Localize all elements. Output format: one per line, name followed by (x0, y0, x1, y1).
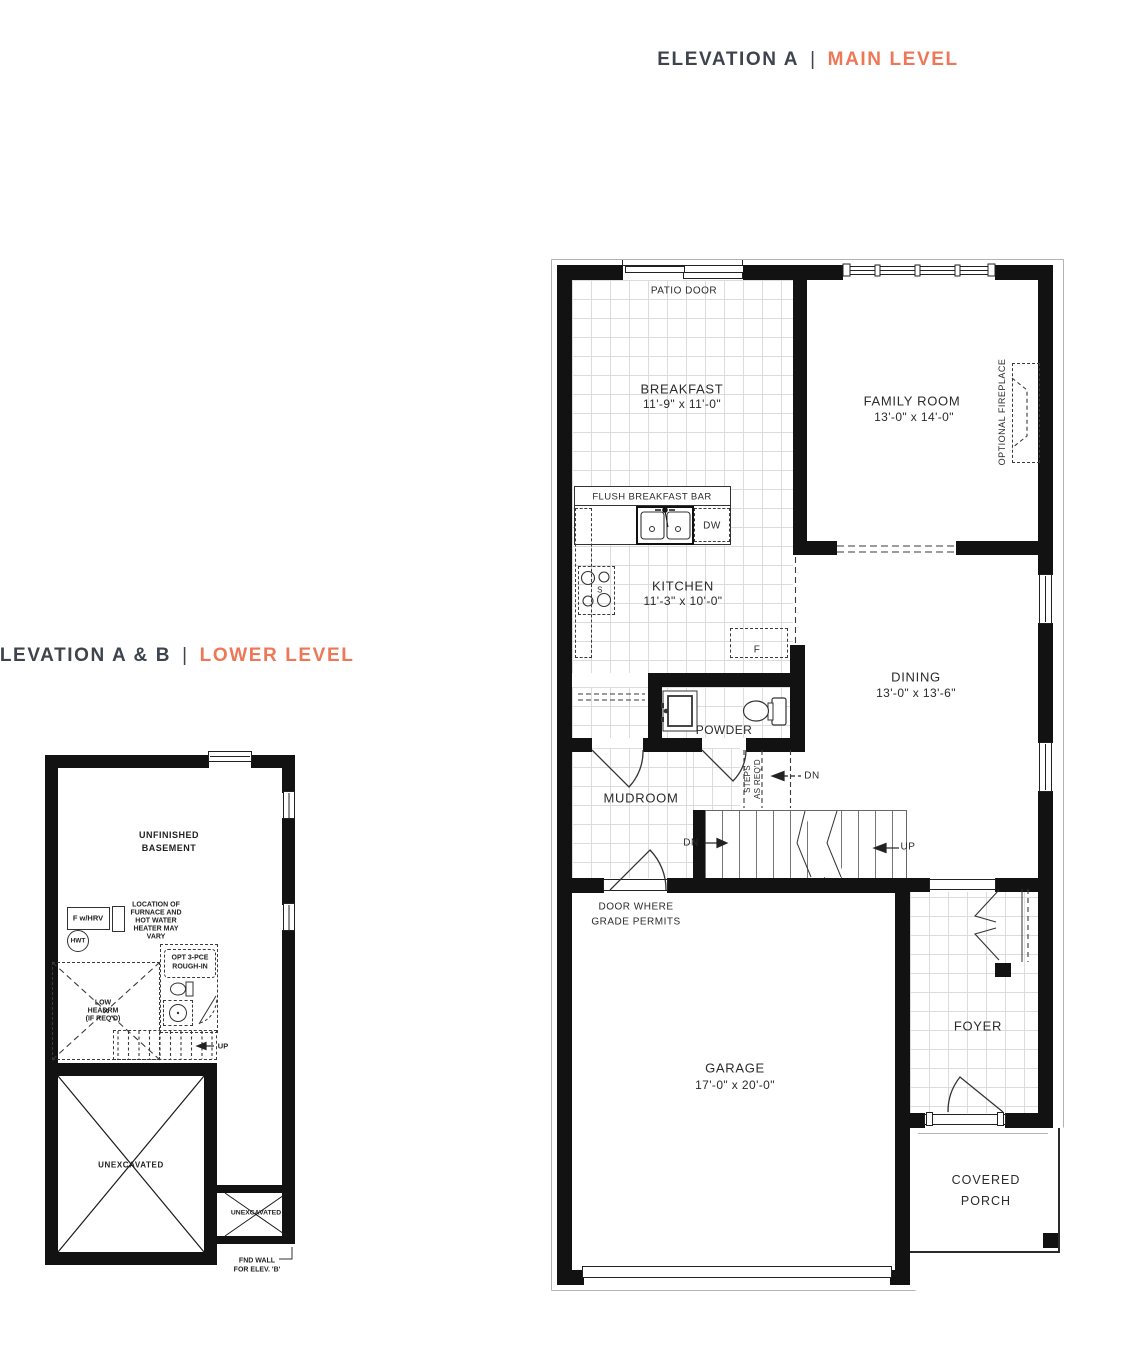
dining-window-1 (1039, 574, 1052, 624)
unexc-wall-bottom (45, 1252, 217, 1265)
wall-breakfast-family (793, 280, 807, 555)
mudroom-floor-ext (693, 748, 740, 810)
wall-foyer-front-b (1005, 1113, 1053, 1128)
wall-powder-bottom-c (746, 738, 805, 752)
kitchen-dims: 11'-3" x 10'-0" (644, 594, 723, 608)
wall-powder-bottom-b (643, 738, 702, 752)
grade-door-note-2: GRADE PERMITS (591, 917, 680, 928)
wall-garage-right (895, 878, 910, 1270)
powder-label: POWDER (696, 723, 752, 737)
dn-arrow-dining-head (772, 772, 784, 781)
unfinished-basement-label-2: BASEMENT (142, 843, 197, 853)
bsmt-wall-right (282, 755, 295, 1244)
unexcavated-small-label: UNEXCAVATED (231, 1210, 281, 1217)
unfinished-basement-label-1: UNFINISHED (139, 830, 199, 840)
covered-porch-outline (910, 1128, 1060, 1253)
end-wall-leader (279, 1247, 292, 1259)
wall-main-right (1038, 265, 1053, 1128)
bsmt-wall-top (45, 755, 295, 768)
covered-porch-label-1: COVERED (952, 1173, 1021, 1187)
low-headrm-label-3: (IF REQ'D) (86, 1016, 121, 1023)
front-door-threshold (924, 1114, 1006, 1125)
bsmt-stairs-dashed (113, 1030, 217, 1060)
low-headrm-label-2: HEADRM (88, 1008, 119, 1015)
foyer-floor (910, 878, 1038, 1113)
floorplan-canvas: ELEVATION A|MAIN LEVEL ELEVATION A & B|L… (0, 0, 1129, 1365)
porch-post (1043, 1233, 1058, 1248)
furnace-hrv-label: F w/HRV (73, 914, 103, 923)
patio-door-panel-1 (625, 266, 685, 273)
steps-line-1: STEPS (743, 759, 753, 799)
up-label-bsmt: UP (218, 1042, 228, 1051)
lower-level-header: ELEVATION A & B|LOWER LEVEL (0, 645, 354, 667)
hwt-label: HWT (71, 938, 86, 945)
wall-powder-bottom-a (572, 738, 592, 752)
furnace-note-2: FURNACE AND (130, 910, 181, 917)
dining-label: DINING (891, 670, 941, 685)
furnace-note-5: VARY (147, 934, 166, 941)
garage-label: GARAGE (705, 1061, 765, 1076)
furnace-duct-box (112, 906, 125, 932)
bsmt-top-window (208, 751, 252, 762)
main-header-level: MAIN LEVEL (828, 49, 959, 70)
lower-header-level: LOWER LEVEL (200, 645, 355, 666)
end-wall-note-1: FND WALL (239, 1258, 275, 1265)
wall-dining-left (790, 645, 805, 748)
dn-label-dining: DN (804, 771, 819, 782)
dn-label-stairs: DN (683, 838, 698, 849)
front-door-sidelite-left (926, 1112, 933, 1126)
steps-line-2: AS REQ'D (753, 759, 763, 799)
wall-family-bottom-right (956, 541, 1038, 555)
optional-fireplace-label: OPTIONAL FIREPLACE (997, 359, 1007, 466)
stove-label: S (597, 586, 603, 595)
wall-powder-top (648, 673, 805, 687)
family-room-label: FAMILY ROOM (864, 394, 961, 409)
dining-window-2 (1039, 742, 1052, 792)
lower-header-elevation: ELEVATION A & B (0, 645, 171, 666)
fridge-label: F (754, 645, 761, 656)
bsmt-right-window-2 (283, 903, 295, 931)
mudroom-floor (572, 748, 693, 878)
patio-door-label: PATIO DOOR (651, 286, 717, 297)
wall-powder-left (648, 687, 662, 738)
shower-rough-box (163, 1000, 193, 1026)
grade-door-note-1: DOOR WHERE (599, 902, 674, 913)
furnace-note-3: HOT WATER (135, 918, 176, 925)
wall-dining-bottom-b (995, 878, 1038, 892)
steps-as-reqd-label: STEPS AS REQ'D (743, 759, 763, 799)
main-header-elevation: ELEVATION A (657, 49, 799, 70)
wall-main-left (557, 265, 572, 1285)
rough-in-label-1: OPT 3-PCE (172, 955, 209, 962)
flush-breakfast-bar-label: FLUSH BREAKFAST BAR (592, 492, 711, 503)
powder-closet-floor (572, 687, 805, 738)
main-staircase (705, 810, 907, 878)
bsmt-right-window-1 (283, 791, 295, 819)
main-level-header: ELEVATION A|MAIN LEVEL (657, 49, 958, 71)
wall-dining-bottom-a (910, 878, 930, 892)
optional-fireplace-box (1012, 363, 1040, 463)
dishwasher-label: DW (703, 521, 721, 532)
breakfast-dims: 11'-9" x 11'-0" (643, 397, 721, 411)
foyer-opening-jambs (929, 879, 996, 890)
dining-dims: 13'-0" x 13'-6" (876, 686, 956, 700)
grade-door-threshold (603, 879, 668, 891)
garage-door (582, 1266, 892, 1278)
lower-header-divider: | (182, 645, 189, 666)
breakfast-label: BREAKFAST (641, 382, 724, 397)
kitchen-label: KITCHEN (652, 579, 714, 594)
wall-foyer-front-a (910, 1113, 925, 1128)
unexc-wall-top (45, 1063, 217, 1076)
up-label-main: UP (901, 842, 916, 853)
family-room-dims: 13'-0" x 14'-0" (874, 410, 954, 424)
furnace-note-1: LOCATION OF (132, 902, 180, 909)
front-door-sidelite-right (997, 1112, 1004, 1126)
patio-door-panel-2 (683, 272, 743, 279)
unexcavated-large-label: UNEXCAVATED (98, 1161, 164, 1170)
patio-door-frame (622, 259, 743, 266)
family-dining-opening (837, 546, 956, 552)
main-header-divider: | (810, 49, 817, 70)
wall-closet-stub (995, 963, 1011, 977)
mudroom-label: MUDROOM (604, 791, 679, 806)
wall-family-bottom-left (793, 541, 837, 555)
unexc-wall-right (204, 1063, 217, 1265)
end-wall-note-2: FOR ELEV. 'B' (234, 1267, 281, 1274)
unexc-small-wall-top (217, 1185, 295, 1193)
covered-porch-label-2: PORCH (961, 1194, 1011, 1208)
unexcavated-crosses (58, 1076, 287, 1252)
low-headrm-label-1: LOW (95, 1000, 111, 1007)
foyer-label: FOYER (954, 1019, 1002, 1034)
garage-dims: 17'-0" x 20'-0" (695, 1078, 775, 1092)
furnace-note-4: HEATER MAY (133, 926, 178, 933)
family-window (843, 266, 995, 275)
unexc-small-wall-bottom (217, 1236, 295, 1244)
rough-in-label-2: ROUGH-IN (172, 964, 207, 971)
